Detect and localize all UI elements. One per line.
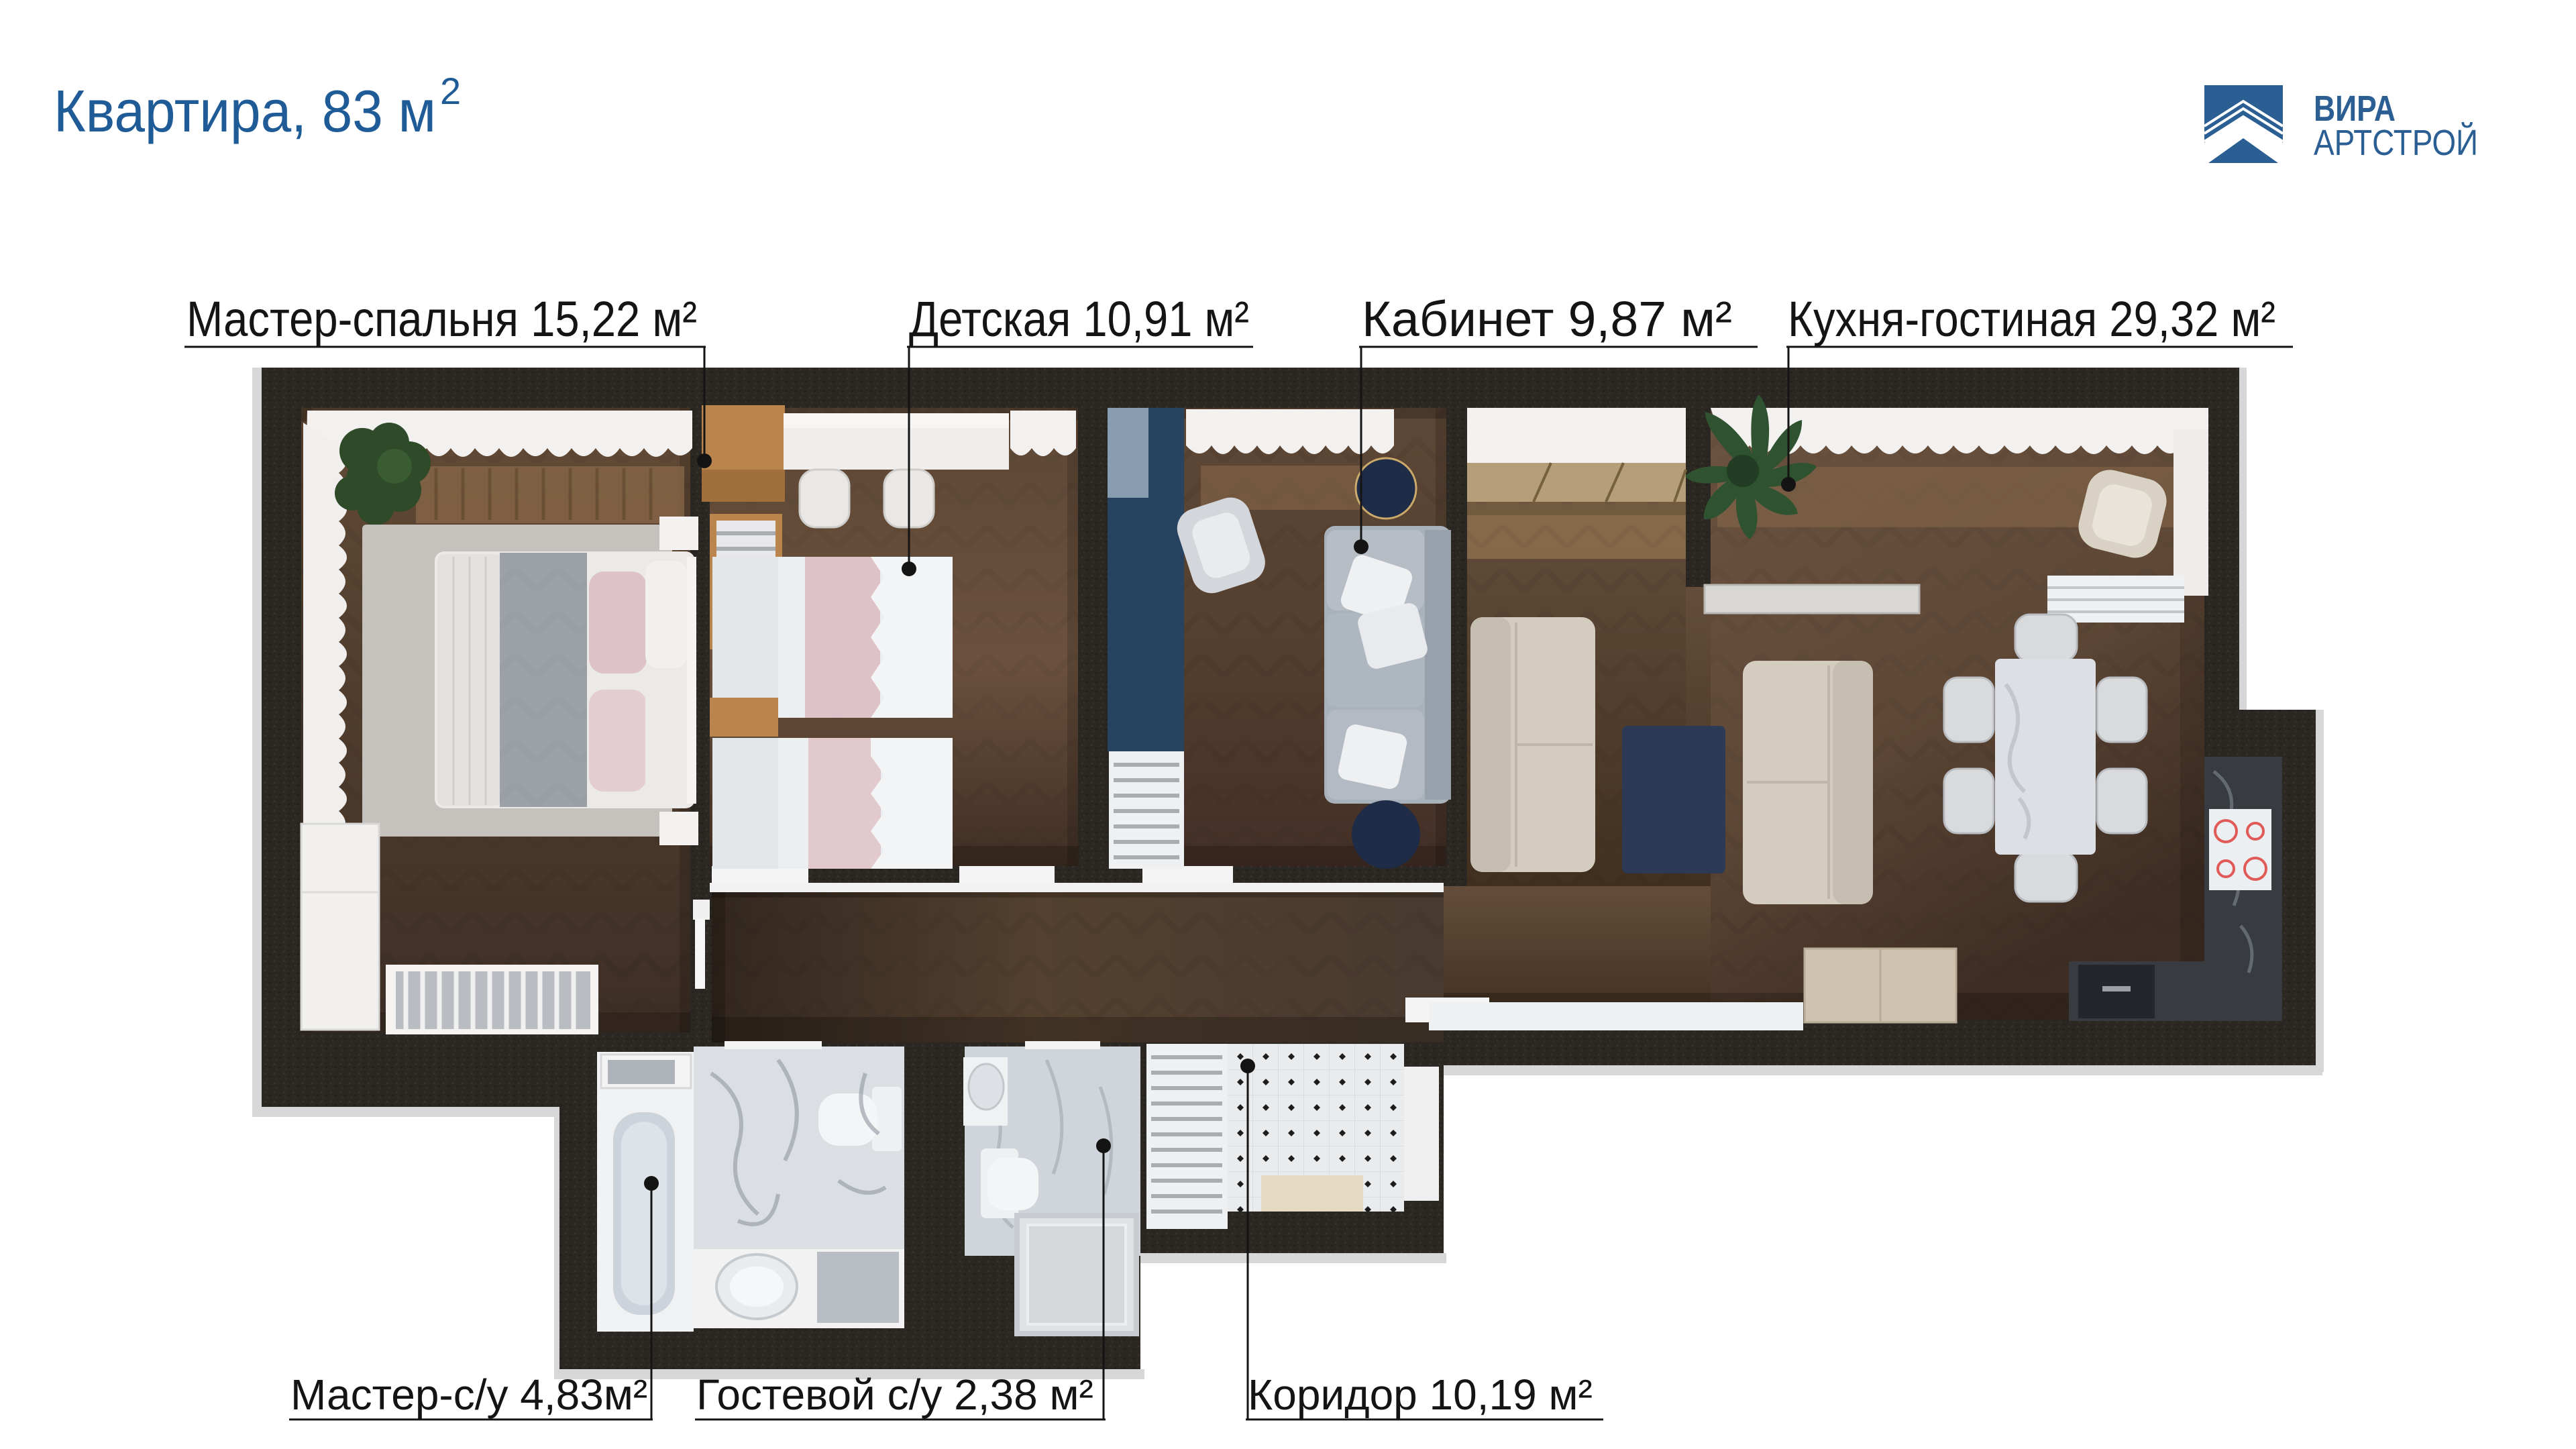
svg-text:Детская 10,91 м²: Детская 10,91 м²	[909, 291, 1249, 347]
svg-text:Мастер-спальня 15,22 м²: Мастер-спальня 15,22 м²	[186, 291, 697, 347]
svg-text:2: 2	[440, 70, 461, 112]
svg-text:Коридор 10,19 м²: Коридор 10,19 м²	[1248, 1371, 1593, 1419]
svg-text:Гостевой с/у 2,38 м²: Гостевой с/у 2,38 м²	[696, 1371, 1093, 1419]
svg-text:Квартира, 83 м: Квартира, 83 м	[54, 78, 436, 144]
svg-text:АРТСТРОЙ: АРТСТРОЙ	[2314, 122, 2478, 163]
svg-text:Кухня-гостиная 29,32 м²: Кухня-гостиная 29,32 м²	[1788, 291, 2275, 347]
svg-text:Кабинет 9,87 м²: Кабинет 9,87 м²	[1362, 291, 1732, 347]
svg-text:Мастер-с/у 4,83м²: Мастер-с/у 4,83м²	[290, 1371, 647, 1419]
